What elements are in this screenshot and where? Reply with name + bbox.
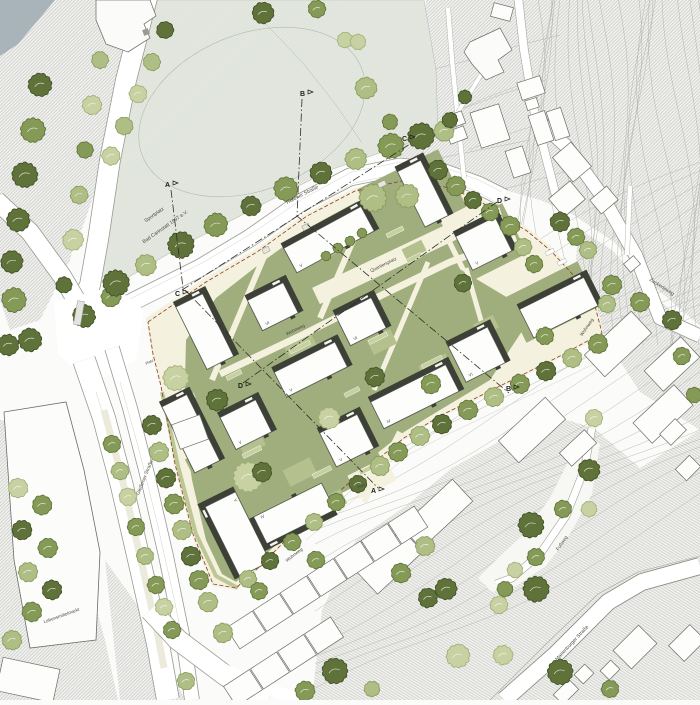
svg-text:D: D xyxy=(238,383,243,390)
svg-text:A: A xyxy=(165,182,170,189)
svg-text:A: A xyxy=(371,488,376,495)
svg-text:B: B xyxy=(300,91,305,98)
svg-text:B: B xyxy=(506,386,511,393)
svg-text:C: C xyxy=(402,136,407,143)
svg-text:D: D xyxy=(497,198,502,205)
svg-text:C: C xyxy=(175,291,180,298)
